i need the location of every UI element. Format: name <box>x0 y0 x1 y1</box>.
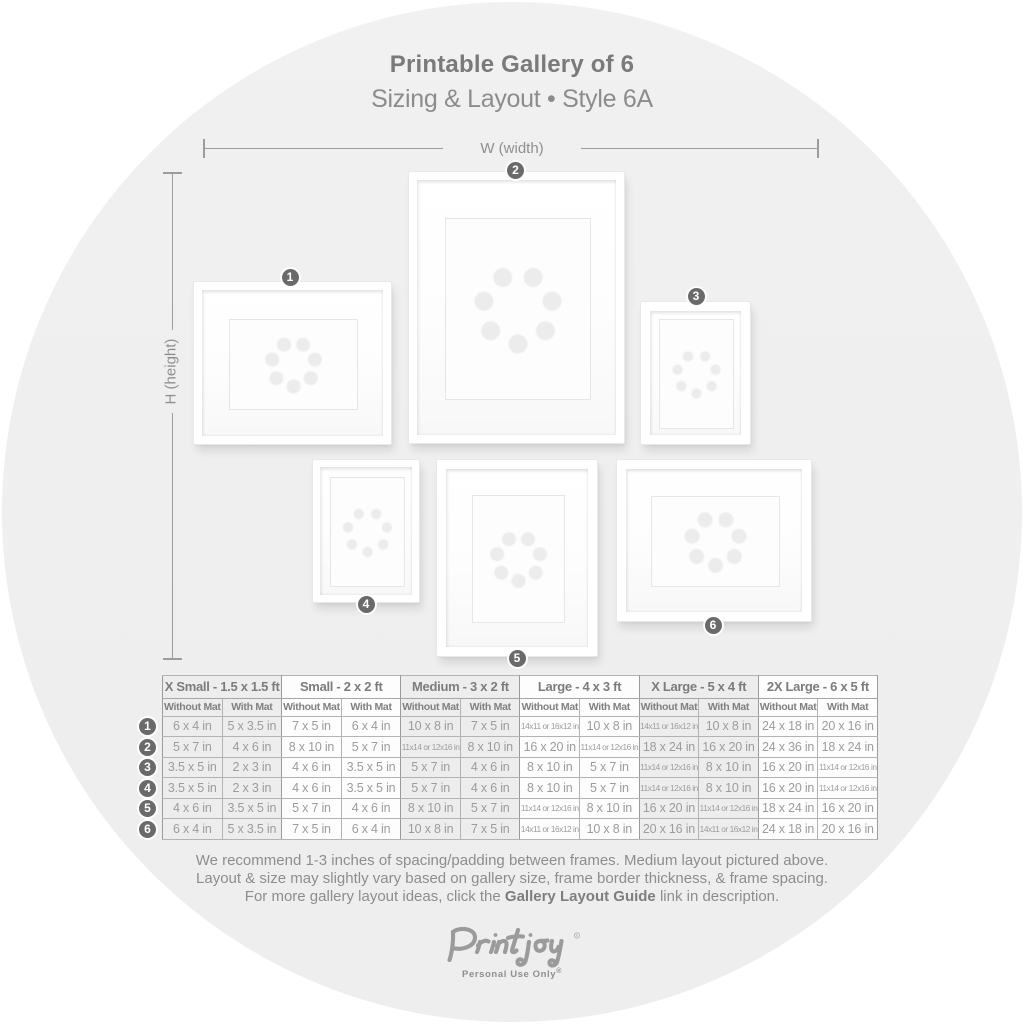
svg-text:R: R <box>576 934 579 938</box>
